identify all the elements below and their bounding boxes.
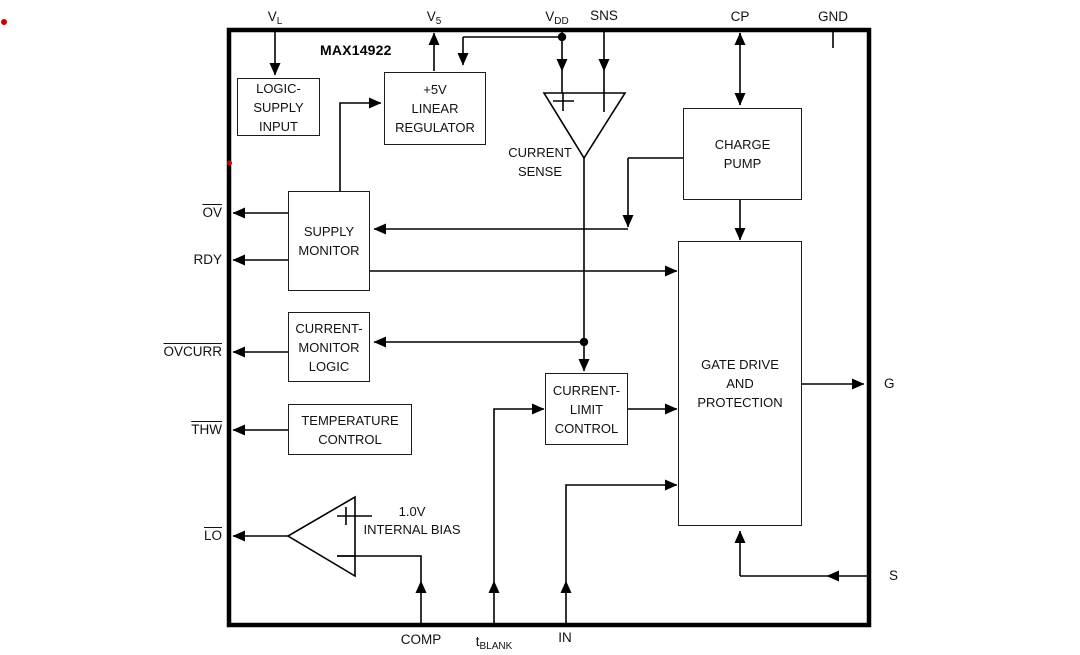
pin-vdd-base: V [545,9,554,24]
pin-label-rdy: RDY [193,252,222,267]
wire-in [566,485,677,624]
pin-label-ov: OV [202,205,222,220]
wire-supply-monitor-to-regulator [340,103,381,191]
pin-label-comp: COMP [401,632,442,647]
wiring-layer [0,0,1080,655]
junction-dot [580,338,588,346]
internal-bias-label: 1.0V INTERNAL BIAS [350,503,474,539]
pin-label-in: IN [558,630,572,645]
pin-vl-sub: L [277,16,283,27]
wire-s [740,531,867,576]
wire-tblank [494,409,544,624]
pin-label-tblank: tBLANK [476,634,513,649]
pin-v5-sub: 5 [436,16,442,27]
pin-label-cp: CP [731,9,750,24]
block-diagram-canvas: MAX14922 LOGIC- SUPPLY INPUT +5V LINEAR … [0,0,1080,655]
internal-bias-comparator-symbol [288,497,355,576]
pin-label-thw: THW [191,422,222,437]
block-linear-regulator: +5V LINEAR REGULATOR [384,72,486,145]
block-charge-pump: CHARGE PUMP [683,108,802,200]
pin-label-s: S [889,568,898,583]
pin-label-g: G [884,376,895,391]
block-current-limit-control: CURRENT- LIMIT CONTROL [545,373,628,445]
block-supply-monitor: SUPPLY MONITOR [288,191,370,291]
pin-vdd-sub: DD [554,16,568,27]
pin-label-lo: LO [204,528,222,543]
block-gate-drive-protection: GATE DRIVE AND PROTECTION [678,241,802,526]
device-name: MAX14922 [320,42,392,58]
pin-label-v5: V5 [427,9,442,24]
block-current-monitor-logic: CURRENT- MONITOR LOGIC [288,312,370,382]
block-logic-supply-input: LOGIC- SUPPLY INPUT [237,78,320,136]
pin-label-ovcurr: OVCURR [163,344,222,359]
current-sense-label: CURRENT SENSE [500,143,580,181]
pin-label-vl: VL [268,9,283,24]
junction-dot [558,33,566,41]
pin-label-sns: SNS [590,8,618,23]
pin-v5-base: V [427,9,436,24]
pin-vl-base: V [268,9,277,24]
pin-label-gnd: GND [818,9,848,24]
red-annotation-dot [227,161,232,166]
red-annotation-dot [1,19,7,25]
pin-tblank-sub: BLANK [479,641,512,652]
block-temperature-control: TEMPERATURE CONTROL [288,404,412,455]
pin-label-vdd: VDD [545,9,568,24]
wire-current-sense-output [374,158,584,371]
